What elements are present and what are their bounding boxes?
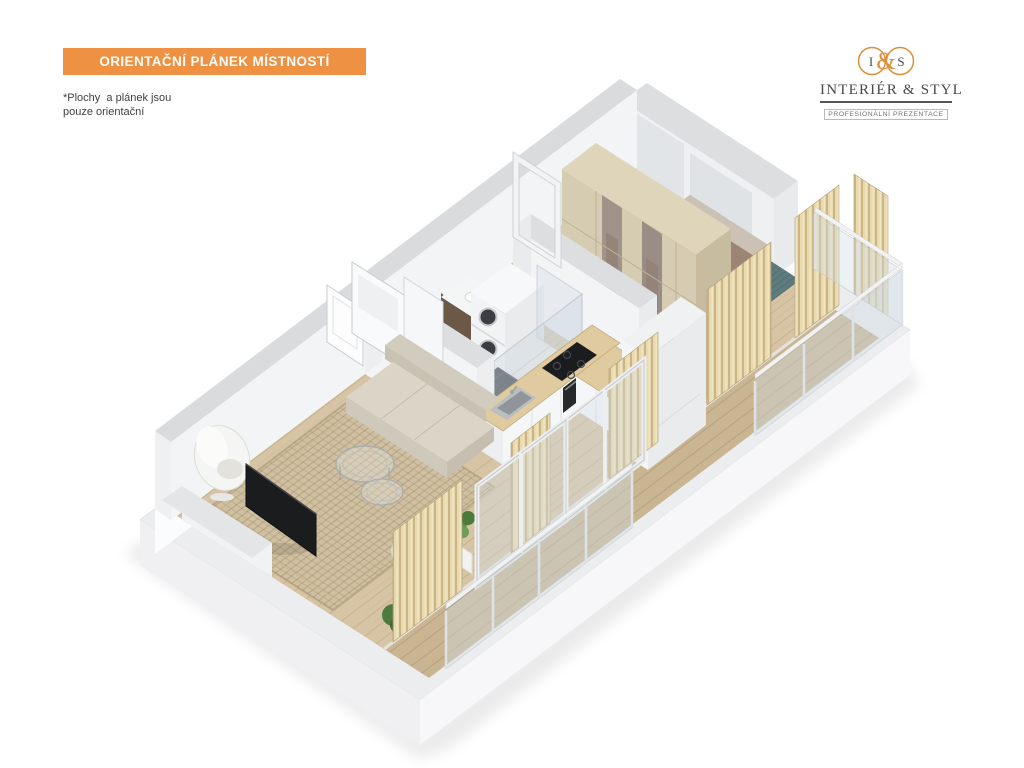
presentation-page: ORIENTAČNÍ PLÁNEK MÍSTNOSTÍ *Plochy a pl…: [0, 0, 1024, 768]
floorplan-render: [0, 0, 1024, 768]
washer-door-icon: [480, 309, 497, 326]
